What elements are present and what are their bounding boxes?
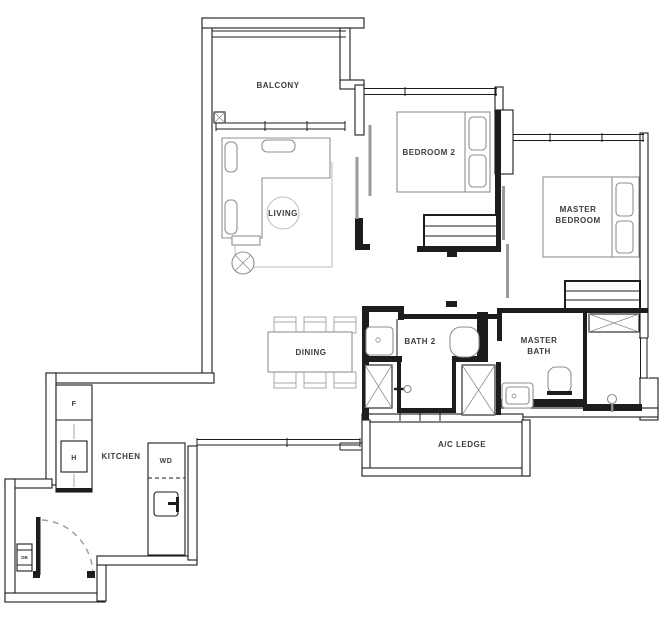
floor-plan-svg: BALCONY LIVING BEDROOM 2 MASTER BEDROOM … (0, 0, 669, 637)
bath2-sink-icon (366, 319, 397, 356)
sofa-icon (222, 138, 330, 245)
hob-label: H (71, 455, 77, 462)
wardrobe2-icon (424, 215, 497, 247)
master-wardrobe-icon (565, 281, 640, 309)
fridge-label: F (72, 401, 77, 408)
floor-plan: BALCONY LIVING BEDROOM 2 MASTER BEDROOM … (0, 0, 669, 637)
wc-door-handle-icon (394, 386, 411, 393)
floor-lamp-icon (232, 252, 254, 274)
ac-ledge-label: A/C LEDGE (438, 440, 486, 449)
column-marker-icon (214, 112, 225, 123)
db-label: DB (21, 555, 28, 560)
master-bath-label-line2: BATH (527, 347, 551, 356)
entry-door-icon (33, 517, 95, 578)
master-bedroom-label-line1: MASTER (560, 205, 597, 214)
bedroom2-label: BEDROOM 2 (403, 148, 456, 157)
master-bedroom-label-line2: BEDROOM (555, 216, 600, 225)
master-toilet-icon (547, 367, 572, 395)
shower-right-icon (462, 365, 495, 415)
master-bath-label-line1: MASTER (521, 336, 558, 345)
master-sink-icon (502, 383, 533, 408)
dining-label: DINING (296, 348, 327, 357)
balcony-label: BALCONY (256, 81, 299, 90)
bathtub-icon (450, 327, 479, 357)
bath2-label: BATH 2 (404, 337, 435, 346)
kitchen-label: KITCHEN (101, 452, 140, 461)
shower-left-icon (365, 365, 392, 408)
luggage-rack-icon (589, 314, 639, 332)
living-label: LIVING (268, 209, 298, 218)
washer-dryer-label: WD (160, 458, 173, 465)
